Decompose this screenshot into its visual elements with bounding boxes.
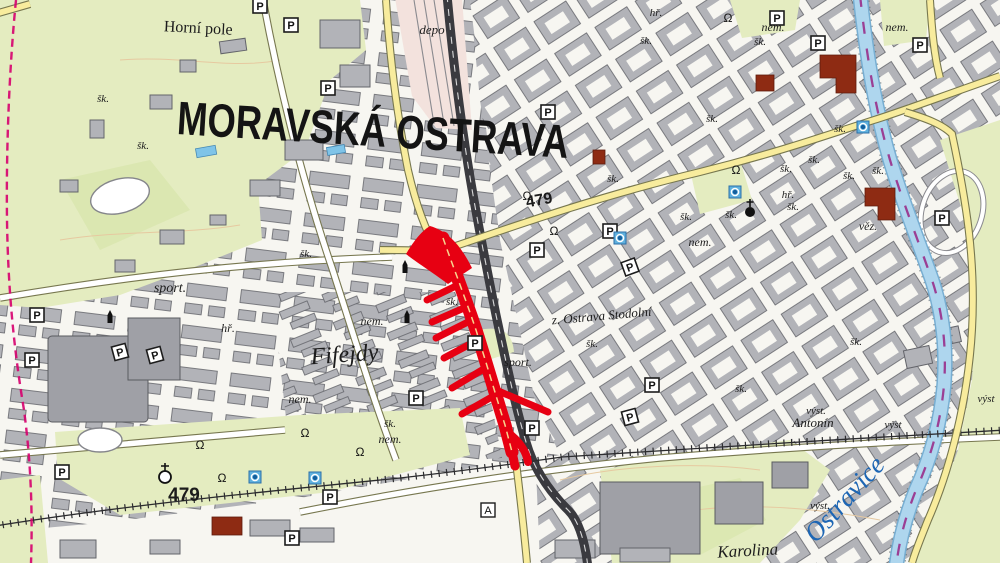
info-icon xyxy=(249,471,261,483)
parking-icon: P xyxy=(621,408,638,425)
map-label: šk. xyxy=(872,165,884,177)
map-label: šk. xyxy=(607,173,619,185)
svg-text:P: P xyxy=(648,380,655,392)
info-icon xyxy=(309,472,321,484)
map-label: Horní pole xyxy=(163,18,233,39)
map-label: šk. xyxy=(446,296,458,308)
map-label: šk. xyxy=(843,170,855,182)
map-label: 479 xyxy=(168,485,200,506)
map-label: šk. xyxy=(680,211,692,223)
svg-text:P: P xyxy=(326,492,333,504)
bell-icon: Ω xyxy=(550,224,559,238)
parking-icon: P xyxy=(111,343,128,360)
bell-icon: Ω xyxy=(301,426,310,440)
map-label: šk. xyxy=(137,140,149,152)
map-label: nem. xyxy=(886,20,909,34)
bell-icon: Ω xyxy=(196,438,205,452)
map-label: šk. xyxy=(97,93,109,105)
map-viewport: PPPPPPPPPPPPPPPPPPPPPPPΩΩΩΩΩΩΩΩA MORAVSK… xyxy=(0,0,1000,563)
svg-text:P: P xyxy=(916,40,923,52)
map-label: šk. xyxy=(725,209,737,221)
svg-text:P: P xyxy=(471,338,478,350)
parking-icon: P xyxy=(146,346,163,363)
map-label: výst. xyxy=(806,405,826,417)
parking-icon: P xyxy=(25,353,39,367)
map-label: hř. xyxy=(782,189,795,201)
map-label: šk. xyxy=(787,201,799,213)
box-a-icon: A xyxy=(481,503,495,517)
svg-text:Ω: Ω xyxy=(301,426,310,440)
map-label: hř. xyxy=(650,7,663,19)
map-canvas: PPPPPPPPPPPPPPPPPPPPPPPΩΩΩΩΩΩΩΩA MORAVSK… xyxy=(0,0,1000,563)
map-label: výst xyxy=(977,393,995,405)
bell-icon: Ω xyxy=(356,445,365,459)
map-label: šk. xyxy=(780,163,792,175)
map-label: Fifejdy xyxy=(309,340,380,371)
svg-text:Ω: Ω xyxy=(724,11,733,25)
parking-icon: P xyxy=(253,0,267,13)
map-label: šk. xyxy=(850,336,862,348)
map-label: nem. xyxy=(361,314,384,328)
svg-text:P: P xyxy=(324,83,331,95)
map-label: nem. xyxy=(689,235,712,249)
svg-text:P: P xyxy=(533,245,540,257)
svg-text:P: P xyxy=(28,355,35,367)
svg-text:A: A xyxy=(484,505,492,517)
svg-text:P: P xyxy=(287,20,294,32)
map-label: nem. xyxy=(762,20,785,34)
svg-text:P: P xyxy=(288,533,295,545)
svg-text:P: P xyxy=(814,38,821,50)
svg-text:P: P xyxy=(938,213,945,225)
map-label: šk. xyxy=(754,36,766,48)
parking-icon: P xyxy=(30,308,44,322)
svg-text:P: P xyxy=(33,310,40,322)
svg-text:P: P xyxy=(256,1,263,13)
map-label: sport. xyxy=(154,281,186,296)
parking-icon: P xyxy=(645,378,659,392)
map-label: šk. xyxy=(706,113,718,125)
parking-icon: P xyxy=(530,243,544,257)
parking-icon: P xyxy=(525,421,539,435)
svg-text:P: P xyxy=(58,467,65,479)
svg-text:Ω: Ω xyxy=(196,438,205,452)
svg-text:P: P xyxy=(528,423,535,435)
parking-icon: P xyxy=(284,18,298,32)
parking-icon: P xyxy=(323,490,337,504)
map-label: šk. xyxy=(586,338,598,350)
svg-text:Ω: Ω xyxy=(732,163,741,177)
parking-icon: P xyxy=(935,211,949,225)
map-label: hř. xyxy=(221,321,235,335)
map-label: šk. xyxy=(735,383,747,395)
parking-icon: P xyxy=(55,465,69,479)
map-label: šk. xyxy=(808,154,820,166)
map-label: sport. xyxy=(504,355,532,369)
svg-text:Ω: Ω xyxy=(356,445,365,459)
svg-text:Ω: Ω xyxy=(218,471,227,485)
parking-icon: P xyxy=(409,391,423,405)
map-label: Karolina xyxy=(716,539,779,561)
bell-icon: Ω xyxy=(732,163,741,177)
bell-icon: Ω xyxy=(724,11,733,25)
parking-icon: P xyxy=(321,81,335,95)
map-label: výst. xyxy=(810,500,830,512)
map-label: šk. xyxy=(300,248,312,260)
map-label: nem. xyxy=(289,392,312,406)
map-label: věz. xyxy=(859,219,877,233)
info-icon xyxy=(729,186,741,198)
parking-icon: P xyxy=(811,36,825,50)
map-label: nem. xyxy=(379,432,402,446)
info-icon xyxy=(857,121,869,133)
info-icon xyxy=(614,232,626,244)
parking-icon: P xyxy=(285,531,299,545)
svg-text:P: P xyxy=(606,226,613,238)
map-label: šk. xyxy=(834,123,846,135)
map-label: Antonín xyxy=(791,415,833,430)
svg-text:P: P xyxy=(412,393,419,405)
map-label: depo xyxy=(419,22,445,37)
svg-text:Ω: Ω xyxy=(550,224,559,238)
map-label: šk. xyxy=(384,418,396,430)
parking-icon: P xyxy=(468,336,482,350)
map-label: výst xyxy=(884,419,902,431)
bell-icon: Ω xyxy=(218,471,227,485)
map-label: šk. xyxy=(640,35,652,47)
parking-icon: P xyxy=(913,38,927,52)
